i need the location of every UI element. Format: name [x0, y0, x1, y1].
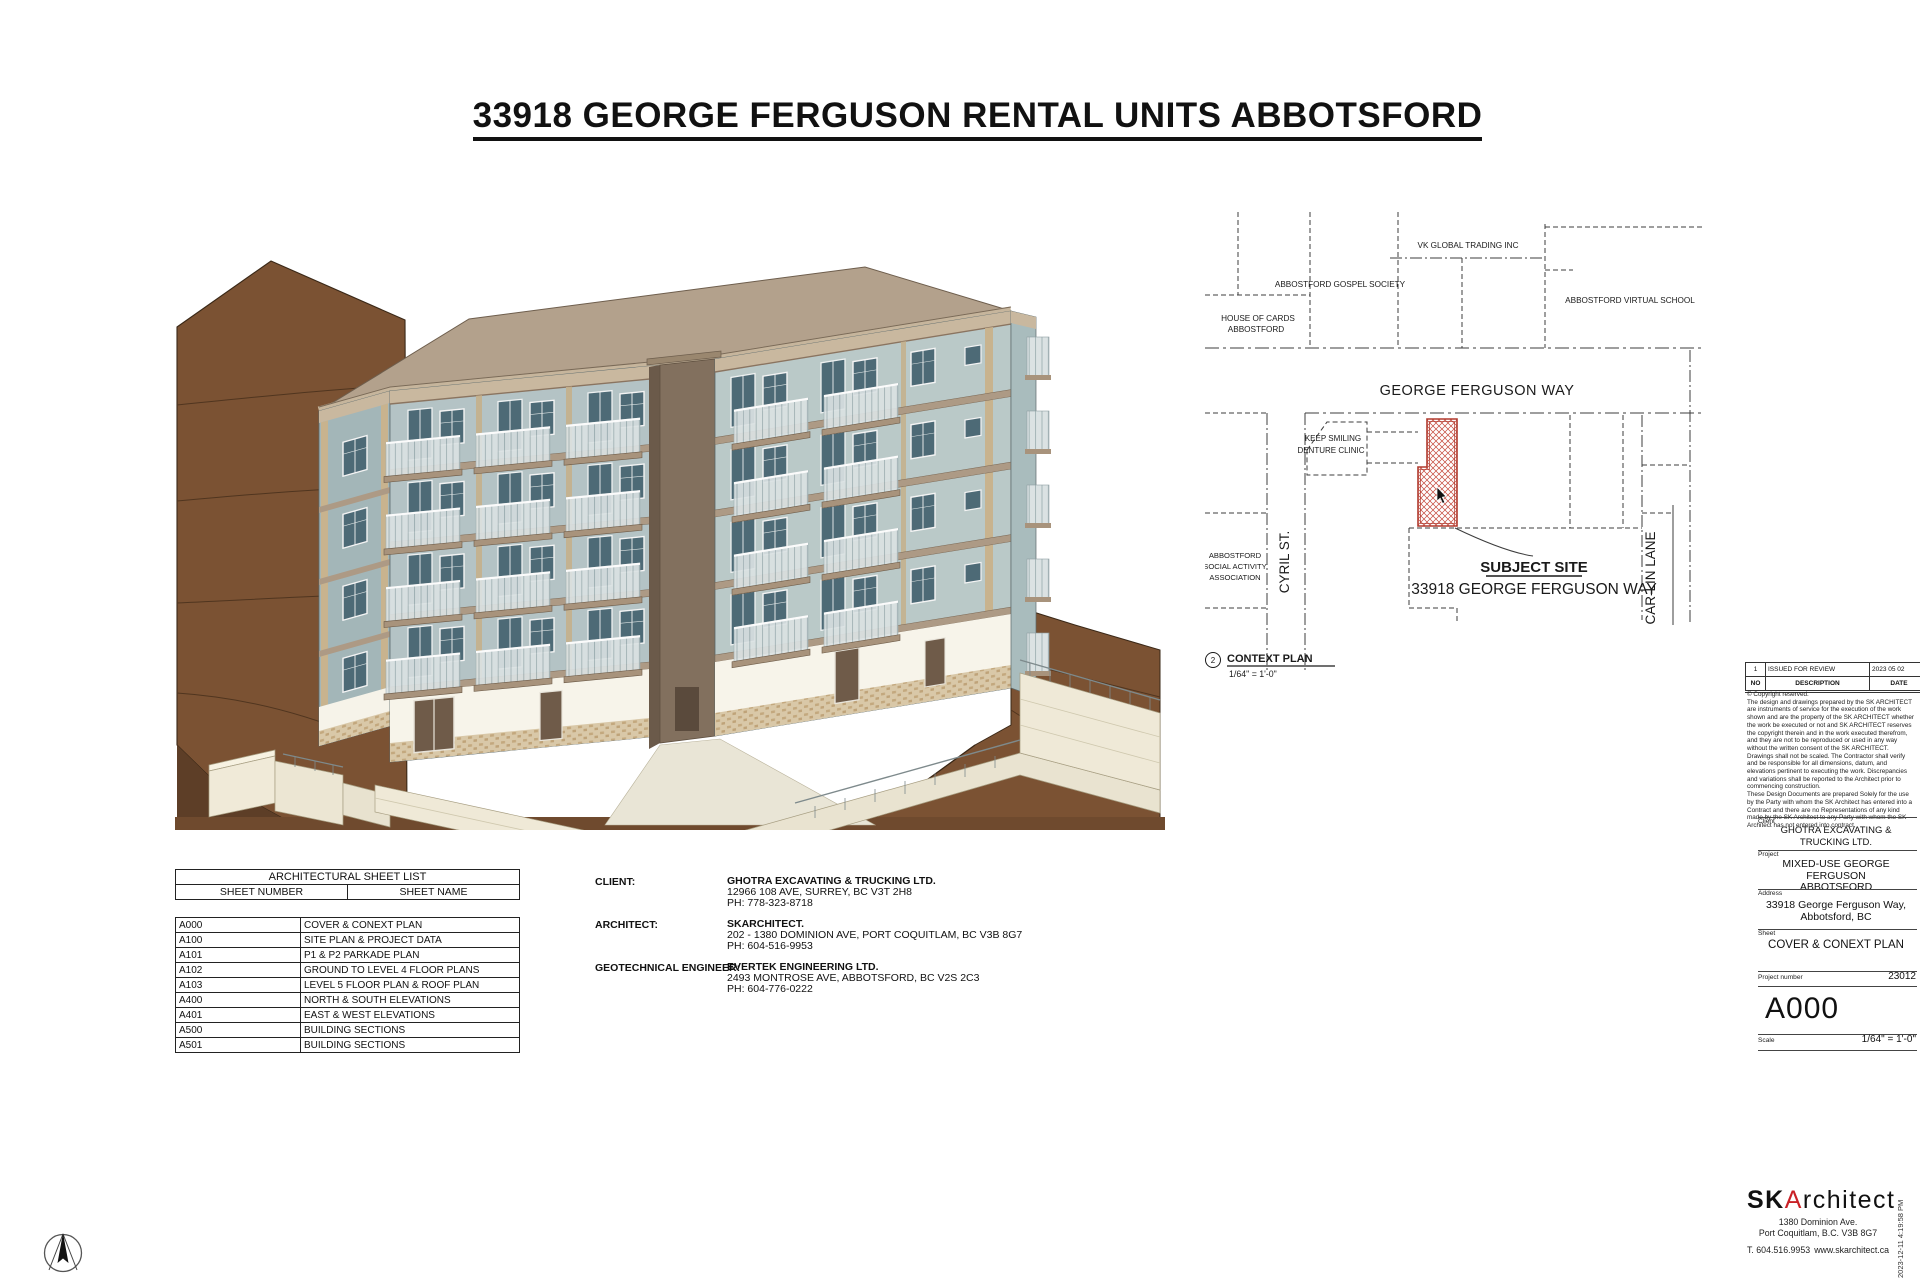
client-line: TRUCKING LTD.: [1755, 837, 1917, 849]
plot-timestamp: 2023-12-11 4:19:58 PM: [1896, 1178, 1905, 1278]
sheet-list: ARCHITECTURAL SHEET LIST SHEET NUMBER SH…: [175, 869, 520, 1053]
scale-value: 1/64" = 1'-0": [1862, 1034, 1916, 1045]
revision-row: 1 ISSUED FOR REVIEW 2023 05 02: [1746, 663, 1920, 677]
client-label: Client: [1758, 818, 1775, 825]
sheet-title: 33918 GEORGE FERGUSON RENTAL UNITS ABBOT…: [473, 96, 1483, 141]
sheet-number-cell: A400: [176, 993, 301, 1008]
detail-number: 2: [1211, 656, 1216, 665]
table-row: A401EAST & WEST ELEVATIONS: [176, 1008, 520, 1023]
address-line: Abbotsford, BC: [1755, 912, 1917, 924]
title-block: 1 ISSUED FOR REVIEW 2023 05 02 NO DESCRI…: [1745, 660, 1918, 1064]
table-row: A500BUILDING SECTIONS: [176, 1023, 520, 1038]
table-row: A400NORTH & SOUTH ELEVATIONS: [176, 993, 520, 1008]
north-arrow-icon: [38, 1228, 88, 1278]
architect-phone: PH: 604-516-9953: [727, 941, 1022, 952]
lot-label: SOCIAL ACTIVITY: [1205, 562, 1267, 571]
context-plan: ABBOSTFORD GOSPEL SOCIETY HOUSE OF CARDS…: [1205, 210, 1705, 680]
divider: [1758, 986, 1917, 987]
divider: [1758, 1050, 1917, 1051]
table-row: A000COVER & CONEXT PLAN: [176, 918, 520, 933]
lot-label: VK GLOBAL TRADING INC: [1417, 241, 1518, 250]
sheet-name-cell: BUILDING SECTIONS: [301, 1038, 520, 1053]
sheet-name-cell: EAST & WEST ELEVATIONS: [301, 1008, 520, 1023]
revision-table: 1 ISSUED FOR REVIEW 2023 05 02 NO DESCRI…: [1745, 662, 1920, 693]
detail-title: CONTEXT PLAN: [1227, 653, 1313, 665]
revision-header-row: NO DESCRIPTION DATE: [1746, 677, 1920, 692]
project-line: MIXED-USE GEORGE FERGUSON: [1755, 859, 1917, 882]
sheet-label: Sheet: [1758, 930, 1775, 937]
project-number-label: Project number: [1758, 974, 1803, 981]
logo-sk: SK: [1747, 1186, 1785, 1214]
table-row: A102GROUND TO LEVEL 4 FLOOR PLANS: [176, 963, 520, 978]
firm-address-line1: 1380 Dominion Ave.: [1747, 1217, 1889, 1228]
revision-no: 1: [1746, 663, 1766, 677]
firm-address: 1380 Dominion Ave. Port Coquitlam, B.C. …: [1747, 1217, 1889, 1238]
lot-label: ASSOCIATION: [1209, 573, 1260, 582]
sheet-number-cell: A100: [176, 933, 301, 948]
table-row: A501BUILDING SECTIONS: [176, 1038, 520, 1053]
project-number-value: 23012: [1888, 971, 1916, 982]
firm-phone: T. 604.516.9953: [1747, 1245, 1810, 1255]
street-label-car-lin-lane: CAR-LIN LANE: [1643, 531, 1658, 624]
client-info: GHOTRA EXCAVATING & TRUCKING LTD. 12966 …: [727, 876, 936, 909]
project-label: Project: [1758, 851, 1779, 858]
titleblock-client: GHOTRA EXCAVATING & TRUCKING LTD.: [1755, 825, 1917, 848]
street-label-cyril-st: CYRIL ST.: [1277, 531, 1292, 594]
lot-label: DENTURE CLINIC: [1297, 446, 1364, 455]
sheet-name-cell: LEVEL 5 FLOOR PLAN & ROOF PLAN: [301, 978, 520, 993]
revision-description: ISSUED FOR REVIEW: [1766, 663, 1870, 677]
client-line: GHOTRA EXCAVATING &: [1755, 825, 1917, 837]
divider: [1758, 929, 1917, 930]
lot-label: ABBOSTFORD GOSPEL SOCIETY: [1275, 280, 1406, 289]
leader-line: [1455, 528, 1533, 556]
stair-core: [647, 351, 721, 749]
detail-callout: 2 CONTEXT PLAN 1/64" = 1'-0": [1206, 653, 1336, 680]
architect-role-label: ARCHITECT:: [595, 919, 658, 931]
revision-col-description: DESCRIPTION: [1766, 677, 1870, 692]
lot-label: HOUSE OF CARDS: [1221, 314, 1295, 323]
logo-a-red: A: [1785, 1186, 1803, 1214]
sheet-number-cell: A401: [176, 1008, 301, 1023]
detail-scale: 1/64" = 1'-0": [1229, 669, 1277, 679]
sheet-list-col-name: SHEET NAME: [348, 885, 520, 900]
scale-label: Scale: [1758, 1037, 1775, 1044]
firm-website: www.skarchitect.ca: [1814, 1245, 1889, 1255]
lot-label: ABBOSTFORD: [1209, 551, 1262, 560]
sheet-list-header-table: ARCHITECTURAL SHEET LIST SHEET NUMBER SH…: [175, 869, 520, 900]
revision-col-date: DATE: [1870, 677, 1920, 692]
firm-block: SKArchitect 1380 Dominion Ave. Port Coqu…: [1747, 1186, 1889, 1255]
sheet-name-cell: COVER & CONEXT PLAN: [301, 918, 520, 933]
firm-contact: T. 604.516.9953 www.skarchitect.ca: [1747, 1245, 1889, 1255]
address-line: 33918 George Ferguson Way,: [1755, 900, 1917, 912]
building-3d-render: [175, 205, 1165, 830]
sheet-number: A000: [1765, 992, 1839, 1026]
table-row: A100SITE PLAN & PROJECT DATA: [176, 933, 520, 948]
right-end-face: [1011, 311, 1051, 697]
left-wing-face: [384, 365, 660, 763]
left-end-face: [319, 391, 390, 746]
sheet-list-gap: [175, 900, 520, 917]
geotech-phone: PH: 604-776-0222: [727, 984, 979, 995]
lot-label: ABBOSTFORD VIRTUAL SCHOOL: [1565, 296, 1695, 305]
divider: [1758, 817, 1917, 818]
geotech-info: EVERTEK ENGINEERING LTD. 2493 MONTROSE A…: [727, 962, 979, 995]
sheet-name-cell: SITE PLAN & PROJECT DATA: [301, 933, 520, 948]
table-row: A101P1 & P2 PARKADE PLAN: [176, 948, 520, 963]
revision-date: 2023 05 02: [1870, 663, 1920, 677]
geotech-role-label: GEOTECHNICAL ENGINEER:: [595, 962, 740, 974]
sheet-name-cell: P1 & P2 PARKADE PLAN: [301, 948, 520, 963]
sheet-list-title: ARCHITECTURAL SHEET LIST: [176, 870, 520, 885]
street-label-george-ferguson-way: GEORGE FERGUSON WAY: [1380, 383, 1575, 399]
firm-address-line2: Port Coquitlam, B.C. V3B 8G7: [1747, 1228, 1889, 1239]
sheet-number-cell: A101: [176, 948, 301, 963]
sheet-name-cell: GROUND TO LEVEL 4 FLOOR PLANS: [301, 963, 520, 978]
right-wing-face: [715, 311, 1011, 736]
subject-site-hatch: [1418, 419, 1457, 526]
sheet-list-col-number: SHEET NUMBER: [176, 885, 348, 900]
subject-site-label: SUBJECT SITE: [1480, 559, 1588, 576]
sheet-number-cell: A102: [176, 963, 301, 978]
sheet-number-cell: A000: [176, 918, 301, 933]
address-label: Address: [1758, 890, 1782, 897]
copyright-notice: © Copyright reserved. The design and dra…: [1747, 691, 1916, 830]
drawing-sheet: { "sheet": { "title": "33918 GEORGE FERG…: [0, 0, 1920, 1280]
client-role-label: CLIENT:: [595, 876, 635, 888]
sheet-number-cell: A103: [176, 978, 301, 993]
sk-architect-logo: SKArchitect: [1747, 1186, 1889, 1215]
lot-label: KEEP SMILING: [1305, 434, 1361, 443]
title-wrap: 33918 GEORGE FERGUSON RENTAL UNITS ABBOT…: [35, 96, 1920, 141]
subject-site-address: 33918 GEORGE FERGUSON WAY: [1411, 581, 1656, 598]
revision-col-no: NO: [1746, 677, 1766, 692]
titleblock-sheet-name: COVER & CONEXT PLAN: [1755, 940, 1917, 952]
sheet-name-cell: NORTH & SOUTH ELEVATIONS: [301, 993, 520, 1008]
sheet-number-cell: A500: [176, 1023, 301, 1038]
sheet-name-cell: BUILDING SECTIONS: [301, 1023, 520, 1038]
logo-rchitect: rchitect: [1803, 1186, 1896, 1214]
titleblock-address: 33918 George Ferguson Way, Abbotsford, B…: [1755, 900, 1917, 923]
sheet-number-cell: A501: [176, 1038, 301, 1053]
sheet-list-body-table: A000COVER & CONEXT PLAN A100SITE PLAN & …: [175, 917, 520, 1053]
client-phone: PH: 778-323-8718: [727, 898, 936, 909]
lot-label: ABBOSTFORD: [1228, 325, 1284, 334]
divider: [1758, 850, 1917, 851]
architect-info: SKARCHITECT. 202 - 1380 DOMINION AVE, PO…: [727, 919, 1022, 952]
table-row: A103LEVEL 5 FLOOR PLAN & ROOF PLAN: [176, 978, 520, 993]
